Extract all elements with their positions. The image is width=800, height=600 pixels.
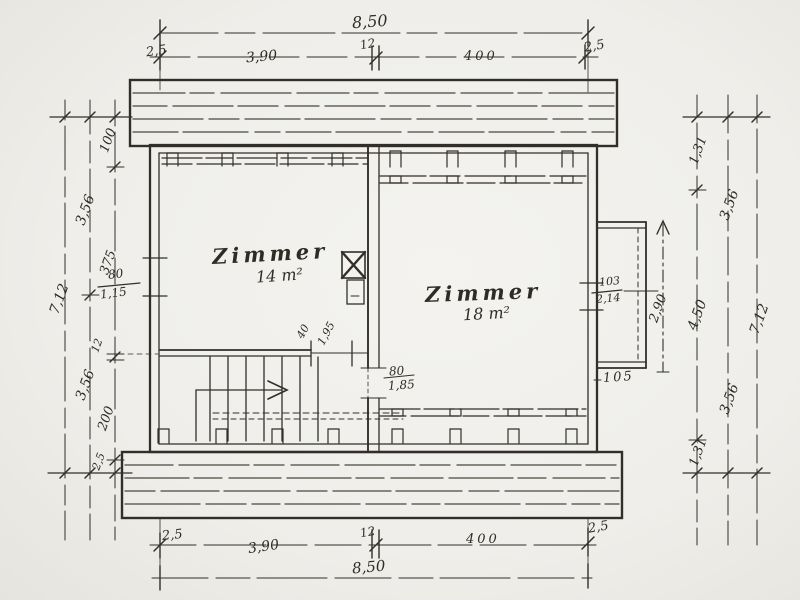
- chimney: [342, 252, 365, 304]
- balcony-width: 105: [603, 370, 635, 385]
- room-2-name: Zimmer: [425, 280, 542, 305]
- dim-bottom-seg-4: 400: [466, 533, 500, 546]
- room-1-name: Zimmer: [212, 240, 329, 267]
- left-window-width: 80: [107, 267, 124, 281]
- balcony-door-height: 2,14: [596, 292, 621, 305]
- interior-door-width: 80: [389, 364, 405, 377]
- dim-bottom-total: 8,50: [351, 559, 386, 577]
- room2-window-band: [380, 151, 586, 183]
- dim-bottom-seg-3: 12: [359, 525, 376, 539]
- dim-top-seg-3: 12: [359, 37, 376, 51]
- room1-window-band: [162, 153, 367, 166]
- terrace-top: [130, 80, 617, 146]
- terrace-bottom: [122, 452, 622, 518]
- plan-linework: [0, 0, 800, 600]
- left-window-sill: 1,15: [99, 285, 127, 300]
- dim-top-total: 8,50: [351, 13, 388, 31]
- interior-door-height: 1,85: [388, 378, 415, 392]
- dim-bottom-seg-2: 3,90: [247, 538, 280, 556]
- dim-top-seg-5: 2,5: [583, 38, 606, 54]
- dim-lines-left: [48, 100, 158, 540]
- room-1-area: 14 m²: [255, 266, 303, 285]
- bottom-window-bands: [158, 409, 586, 443]
- dim-bottom-seg-5: 2,5: [587, 519, 610, 535]
- stairs: [160, 341, 403, 441]
- dim-top-seg-2: 3,90: [245, 49, 277, 66]
- floor-plan-sheet: 8,50 2,5 3,90 12 400 2,5 2,5 3,90 12 400…: [0, 0, 800, 600]
- dim-top-seg-1: 2,5: [145, 44, 167, 60]
- dim-top-seg-4: 400: [464, 50, 498, 63]
- balcony-door-width: 103: [599, 275, 621, 288]
- dim-bottom-seg-1: 2,5: [161, 528, 183, 543]
- room-2-area: 18 m²: [463, 305, 511, 323]
